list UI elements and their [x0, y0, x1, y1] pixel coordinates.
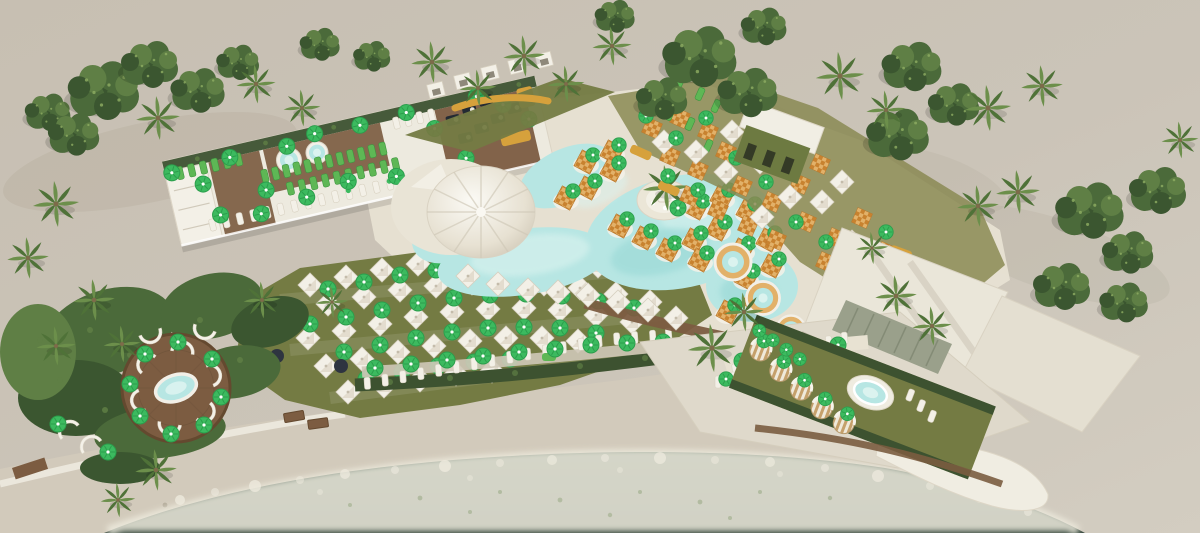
beach-club-aerial-render: Beach club aerial render: [0, 0, 1200, 533]
circular-deck-jacuzzi: [122, 334, 230, 442]
